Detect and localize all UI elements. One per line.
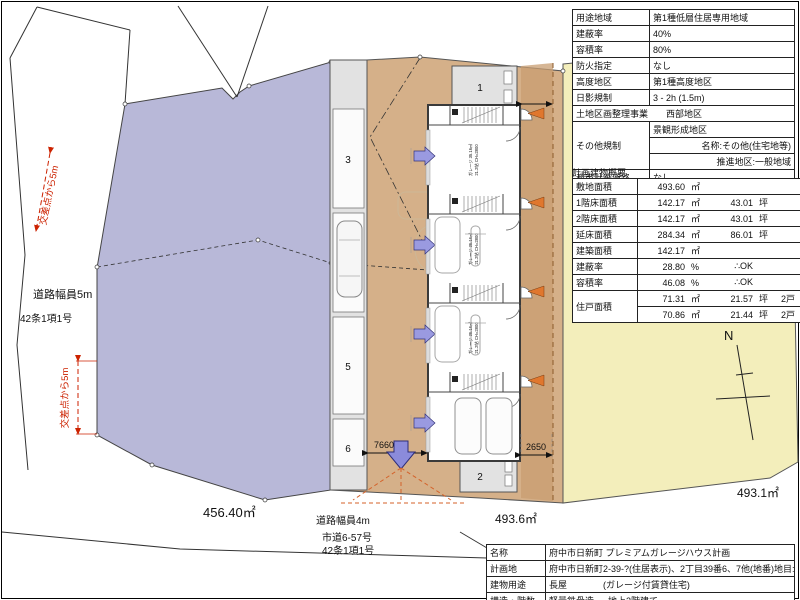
table-row: 名称 府中市日新町 プレミアムガレージハウス計画: [487, 545, 795, 561]
site-area-label: 493.6㎡: [495, 512, 537, 526]
svg-text:交差点から5m: 交差点から5m: [59, 368, 71, 429]
svg-text:2650: 2650: [526, 442, 546, 452]
zoning-value: 第1種低層住居専用地域: [650, 10, 795, 26]
zoning-label: 日影規制: [573, 90, 650, 106]
summary-unit: %: [688, 275, 710, 291]
zoning-merged-row: 土地区画整理事業西部地区: [573, 106, 795, 122]
road-bottom-width-label: 道路幅員4m: [316, 514, 370, 527]
table-row: 日影規制3 - 2h (1.5m): [573, 90, 795, 106]
summary-value2: ∴OK: [710, 275, 756, 291]
north-label: N: [724, 328, 733, 343]
road-left-width-label: 道路幅員5m: [33, 287, 92, 301]
intersection-note-bottom: 交差点から5m: [59, 361, 97, 434]
summary-extra: [778, 275, 800, 291]
summary-unit2: [756, 243, 778, 259]
zoning-label: その他規制: [573, 122, 650, 170]
site-east-strip: [521, 63, 553, 501]
car-stall4: [337, 221, 362, 297]
summary-value: 284.34: [638, 227, 689, 243]
table-row: 建築面積142.17㎡: [573, 243, 800, 259]
zoning-value: 第1種高度地区: [650, 74, 795, 90]
summary-label: 建築面積: [573, 243, 638, 259]
summary-unit2: [756, 179, 778, 195]
zoning-label: 用途地域: [573, 10, 650, 26]
summary-extra: [778, 195, 800, 211]
summary-unit2: [756, 259, 778, 275]
svg-text:7660: 7660: [374, 440, 394, 450]
summary-unit: ㎡: [688, 243, 710, 259]
summary-extra: 2戸: [778, 291, 800, 307]
table-row: 容積率46.08%∴OK: [573, 275, 800, 291]
stall-6-label: 6: [345, 444, 351, 455]
table-row: 土地区画整理事業西部地区: [573, 106, 795, 122]
project-value: 府中市日新町 プレミアムガレージハウス計画: [546, 545, 795, 561]
summary-extra: [778, 179, 800, 195]
project-value: 府中市日新町2-39-?(住居表示)、2丁目39番6、7他(地番)地目:田?: [546, 561, 795, 577]
zoning-value: 3 - 2h (1.5m): [650, 90, 795, 106]
table-row: 建蔽率40%: [573, 26, 795, 42]
summary-value2: 86.01: [710, 227, 756, 243]
zoning-value: 名称:その他(住宅地等): [650, 138, 795, 154]
summary-unit2: [756, 275, 778, 291]
summary-value: 142.17: [638, 211, 689, 227]
zoning-value: 80%: [650, 42, 795, 58]
table-row: 2階床面積142.17㎡43.01坪: [573, 211, 800, 227]
summary-label: 1階床面積: [573, 195, 638, 211]
table-row: 延床面積284.34㎡86.01坪: [573, 227, 800, 243]
table-row: 建物用途 長屋(ガレージ付賃貸住宅): [487, 577, 795, 593]
stall-5-label: 5: [345, 362, 351, 373]
parking-stall-2: 2: [460, 458, 517, 492]
summary-unit: ㎡: [688, 227, 710, 243]
summary-label: 敷地面積: [573, 179, 638, 195]
summary-value: 28.80: [638, 259, 689, 275]
table-row: 建蔽率28.80%∴OK: [573, 259, 800, 275]
summary-label: 住戸面積: [573, 291, 638, 323]
summary-label: 2階床面積: [573, 211, 638, 227]
stall-2-label: 2: [477, 472, 483, 483]
summary-value: 70.86: [638, 307, 689, 323]
project-label: 構造・階数: [487, 593, 546, 600]
summary-extra: 2戸: [778, 307, 800, 323]
summary-extra: [778, 211, 800, 227]
summary-value2: ∴OK: [710, 259, 756, 275]
summary-extra: [778, 243, 800, 259]
zoning-label: 高度地区: [573, 74, 650, 90]
road-bottom-article-label: 42条1項1号: [322, 544, 374, 557]
project-label: 計画地: [487, 561, 546, 577]
summary-value2: 21.44: [710, 307, 756, 323]
summary-extra: [778, 259, 800, 275]
zoning-label: 建蔽率: [573, 26, 650, 42]
site-plan-page: ガレージ 35.16㎡ 21.2帖 CH=2800 N: [0, 0, 800, 600]
summary-label: 建蔽率: [573, 259, 638, 275]
zoning-value: 40%: [650, 26, 795, 42]
summary-label: 容積率: [573, 275, 638, 291]
summary-extra: [778, 227, 800, 243]
zoning-label: 防火指定: [573, 58, 650, 74]
summary-value: 71.31: [638, 291, 689, 307]
table-row: その他規制景観形成地区: [573, 122, 795, 138]
table-row: 容積率80%: [573, 42, 795, 58]
summary-unit2: 坪: [756, 195, 778, 211]
table-row: 用途地域第1種低層住居専用地域: [573, 10, 795, 26]
table-row: 高度地区第1種高度地区: [573, 74, 795, 90]
summary-value2: [710, 179, 756, 195]
summary-unit: ㎡: [688, 179, 710, 195]
intersection-note-top: 交差点から5m: [36, 153, 61, 231]
building-summary-table: 敷地面積493.60㎡ 1階床面積142.17㎡43.01坪 2階床面積142.…: [572, 178, 800, 323]
zoning-value: なし: [650, 58, 795, 74]
table-row: 防火指定なし: [573, 58, 795, 74]
summary-value: 142.17: [638, 195, 689, 211]
summary-unit2: 坪: [756, 291, 778, 307]
summary-unit: ㎡: [688, 307, 710, 323]
summary-unit: ㎡: [688, 195, 710, 211]
project-title-block: 名称 府中市日新町 プレミアムガレージハウス計画 計画地 府中市日新町2-39-…: [486, 544, 795, 600]
summary-value2: 43.01: [710, 211, 756, 227]
zoning-value: 景観形成地区: [650, 122, 795, 138]
project-label: 名称: [487, 545, 546, 561]
project-label: 建物用途: [487, 577, 546, 593]
table-row: 構造・階数 軽量鉄骨造地上2階建て: [487, 593, 795, 600]
summary-unit2: 坪: [756, 211, 778, 227]
summary-value2: 21.57: [710, 291, 756, 307]
table-row: 計画地 府中市日新町2-39-?(住居表示)、2丁目39番6、7他(地番)地目:…: [487, 561, 795, 577]
table-row: 住戸面積71.31㎡21.57坪2戸: [573, 291, 800, 307]
table-row: 1階床面積142.17㎡43.01坪: [573, 195, 800, 211]
svg-text:交差点から5m: 交差点から5m: [37, 164, 61, 226]
zoning-label: 容積率: [573, 42, 650, 58]
left-lot-area-label: 456.40㎡: [203, 505, 256, 520]
table-row: 敷地面積493.60㎡: [573, 179, 800, 195]
project-value: 軽量鉄骨造地上2階建て: [546, 593, 795, 600]
summary-value2: [710, 243, 756, 259]
summary-value: 142.17: [638, 243, 689, 259]
summary-value2: 43.01: [710, 195, 756, 211]
summary-label: 延床面積: [573, 227, 638, 243]
summary-value: 493.60: [638, 179, 689, 195]
summary-unit2: 坪: [756, 307, 778, 323]
right-lot-area-label: 493.1㎡: [737, 486, 779, 500]
summary-unit: ㎡: [688, 291, 710, 307]
summary-unit: %: [688, 259, 710, 275]
zoning-value: 推進地区:一般地域: [650, 154, 795, 170]
stall-3-label: 3: [345, 155, 351, 166]
left-lot-area: [97, 62, 331, 500]
project-value: 長屋(ガレージ付賃貸住宅): [546, 577, 795, 593]
summary-unit2: 坪: [756, 227, 778, 243]
road-left-article-label: 42条1項1号: [20, 312, 72, 325]
stall-1-label: 1: [477, 83, 483, 94]
summary-value: 46.08: [638, 275, 689, 291]
road-bottom-name-label: 市道6-57号: [322, 531, 372, 544]
summary-unit: ㎡: [688, 211, 710, 227]
parking-stall-1: 1: [452, 66, 517, 106]
zoning-table: 用途地域第1種低層住居専用地域 建蔽率40% 容積率80% 防火指定なし 高度地…: [572, 9, 795, 186]
